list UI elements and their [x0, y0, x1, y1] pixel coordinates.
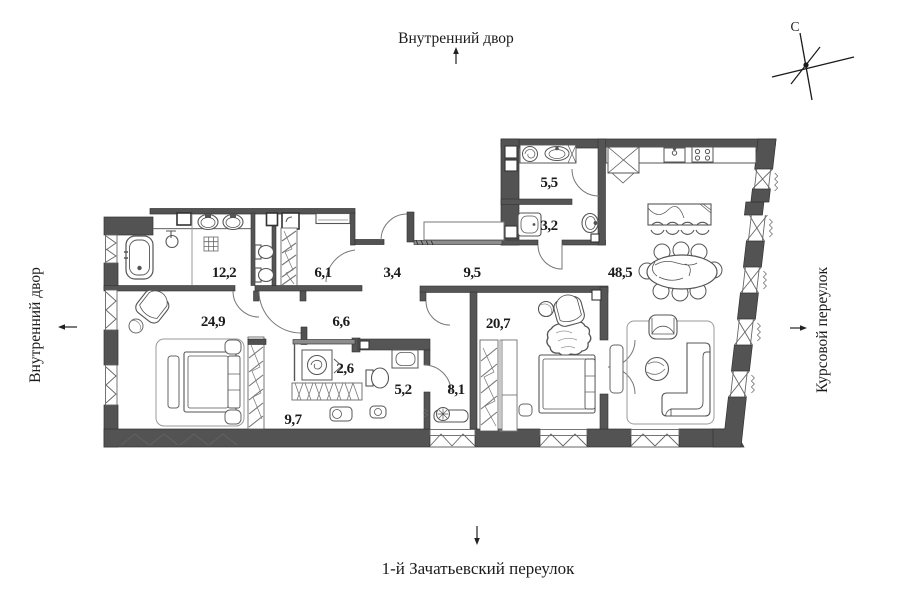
svg-text:3,2: 3,2 — [540, 218, 557, 234]
svg-text:48,5: 48,5 — [608, 265, 632, 281]
svg-text:24,9: 24,9 — [201, 314, 225, 330]
svg-text:8,1: 8,1 — [447, 382, 464, 398]
svg-text:5,5: 5,5 — [540, 175, 557, 191]
svg-text:1-й Зачатьевский переулок: 1-й Зачатьевский переулок — [382, 559, 575, 578]
svg-text:Внутренний двор: Внутренний двор — [27, 267, 44, 383]
svg-text:20,7: 20,7 — [486, 316, 511, 332]
svg-text:Курсовой переулок: Курсовой переулок — [814, 267, 831, 393]
svg-text:2,6: 2,6 — [336, 361, 354, 377]
svg-text:Внутренний двор: Внутренний двор — [398, 30, 514, 47]
svg-text:6,1: 6,1 — [314, 265, 331, 281]
svg-text:5,2: 5,2 — [394, 382, 411, 398]
svg-text:9,7: 9,7 — [284, 412, 302, 428]
svg-text:12,2: 12,2 — [212, 265, 236, 281]
svg-text:С: С — [790, 19, 799, 34]
svg-text:6,6: 6,6 — [332, 314, 350, 330]
svg-text:3,4: 3,4 — [383, 265, 401, 281]
svg-text:9,5: 9,5 — [463, 265, 480, 281]
